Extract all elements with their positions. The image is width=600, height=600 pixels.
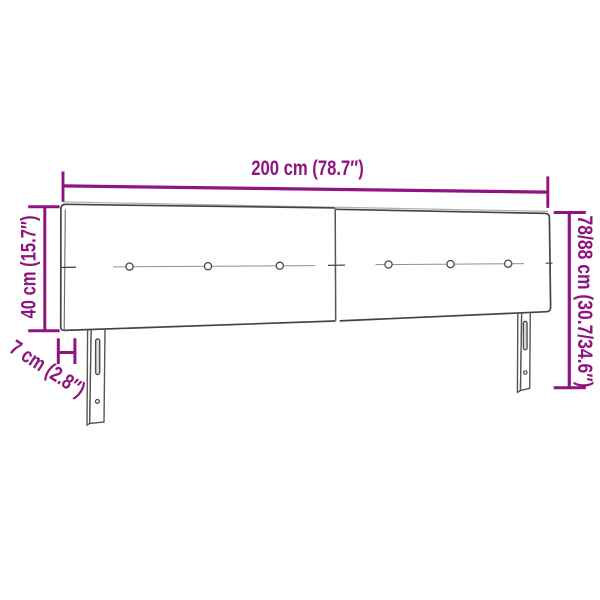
- svg-text:200 cm (78.7″): 200 cm (78.7″): [251, 156, 364, 180]
- svg-text:78/88 cm (30.7/34.6″): 78/88 cm (30.7/34.6″): [573, 216, 597, 388]
- svg-text:7 cm (2.8″): 7 cm (2.8″): [5, 335, 89, 401]
- svg-text:40 cm (15.7″): 40 cm (15.7″): [16, 216, 40, 319]
